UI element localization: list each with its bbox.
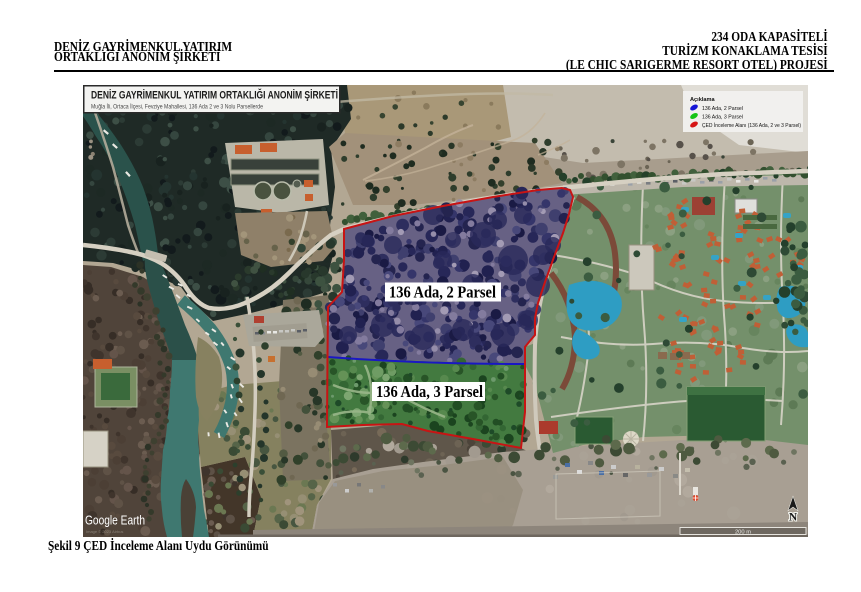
svg-text:136 Ada, 3 Parsel: 136 Ada, 3 Parsel [702,114,743,120]
svg-text:136 Ada, 3 Parsel: 136 Ada, 3 Parsel [376,382,483,401]
svg-text:Image © 2023 Airbus: Image © 2023 Airbus [86,529,123,534]
svg-text:N: N [789,512,798,524]
svg-text:136 Ada, 2 Parsel: 136 Ada, 2 Parsel [702,106,743,112]
svg-text:DENİZ GAYRİMENKUL YATIRIM ORTA: DENİZ GAYRİMENKUL YATIRIM ORTAKLIĞI ANON… [91,89,338,102]
svg-text:Google Earth: Google Earth [85,514,145,528]
svg-text:Muğla İli, Ortaca İlçesi, Fevz: Muğla İli, Ortaca İlçesi, Fevziye Mahall… [91,102,263,111]
svg-text:Açıklama: Açıklama [690,97,715,103]
svg-text:136 Ada, 2 Parsel: 136 Ada, 2 Parsel [389,283,496,302]
svg-text:ÇED İnceleme Alanı (136 Ada, 2: ÇED İnceleme Alanı (136 Ada, 2 ve 3 Pars… [702,122,801,129]
svg-text:200 m: 200 m [735,529,751,535]
